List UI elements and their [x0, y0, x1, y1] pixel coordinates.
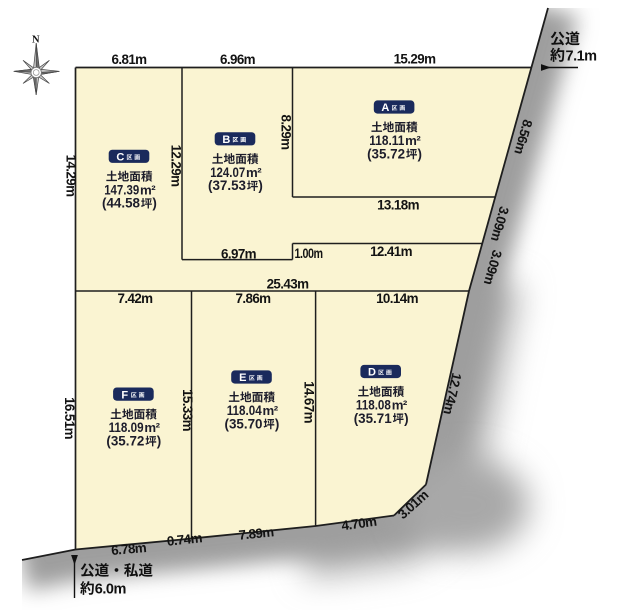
- svg-text:6.0m: 6.0m: [95, 582, 126, 598]
- svg-text:14.29m: 14.29m: [64, 155, 79, 198]
- svg-text:10.14m: 10.14m: [376, 291, 419, 306]
- svg-text:14.67m: 14.67m: [302, 381, 317, 424]
- svg-text:(35.71: (35.71: [354, 411, 393, 426]
- svg-text:8.29m: 8.29m: [279, 115, 294, 151]
- svg-text:6.78m: 6.78m: [111, 540, 148, 558]
- svg-text:F: F: [121, 389, 128, 401]
- svg-text:): ): [152, 196, 156, 211]
- svg-text:E: E: [239, 372, 246, 384]
- svg-text:(35.72: (35.72: [106, 434, 144, 449]
- svg-text:(44.58: (44.58: [102, 196, 141, 211]
- svg-text:): ): [275, 416, 279, 431]
- svg-text:25.43m: 25.43m: [267, 277, 310, 292]
- svg-text:): ): [157, 434, 161, 449]
- svg-text:12.29m: 12.29m: [169, 145, 184, 188]
- svg-text:7.1m: 7.1m: [566, 49, 597, 65]
- svg-text:C: C: [116, 152, 124, 164]
- svg-text:6.97m: 6.97m: [221, 247, 257, 262]
- svg-text:15.33m: 15.33m: [180, 389, 195, 432]
- svg-text:B: B: [222, 134, 230, 146]
- svg-text:): ): [258, 178, 262, 193]
- svg-text:12.41m: 12.41m: [370, 244, 413, 259]
- svg-text:1.00m: 1.00m: [295, 246, 324, 261]
- svg-text:N: N: [32, 35, 40, 46]
- svg-text:(35.70: (35.70: [225, 416, 263, 431]
- svg-text:(37.53: (37.53: [208, 178, 246, 193]
- svg-text:(35.72: (35.72: [367, 146, 405, 161]
- svg-text:13.18m: 13.18m: [377, 198, 420, 213]
- svg-text:16.51m: 16.51m: [62, 397, 77, 440]
- svg-text:7.86m: 7.86m: [236, 291, 272, 306]
- svg-text:6.81m: 6.81m: [112, 52, 148, 67]
- svg-text:7.42m: 7.42m: [118, 291, 154, 306]
- svg-text:15.29m: 15.29m: [394, 52, 437, 67]
- svg-text:): ): [404, 411, 408, 426]
- svg-text:D: D: [368, 367, 376, 379]
- svg-text:): ): [418, 146, 422, 161]
- svg-text:6.96m: 6.96m: [220, 52, 256, 67]
- svg-text:A: A: [381, 102, 389, 114]
